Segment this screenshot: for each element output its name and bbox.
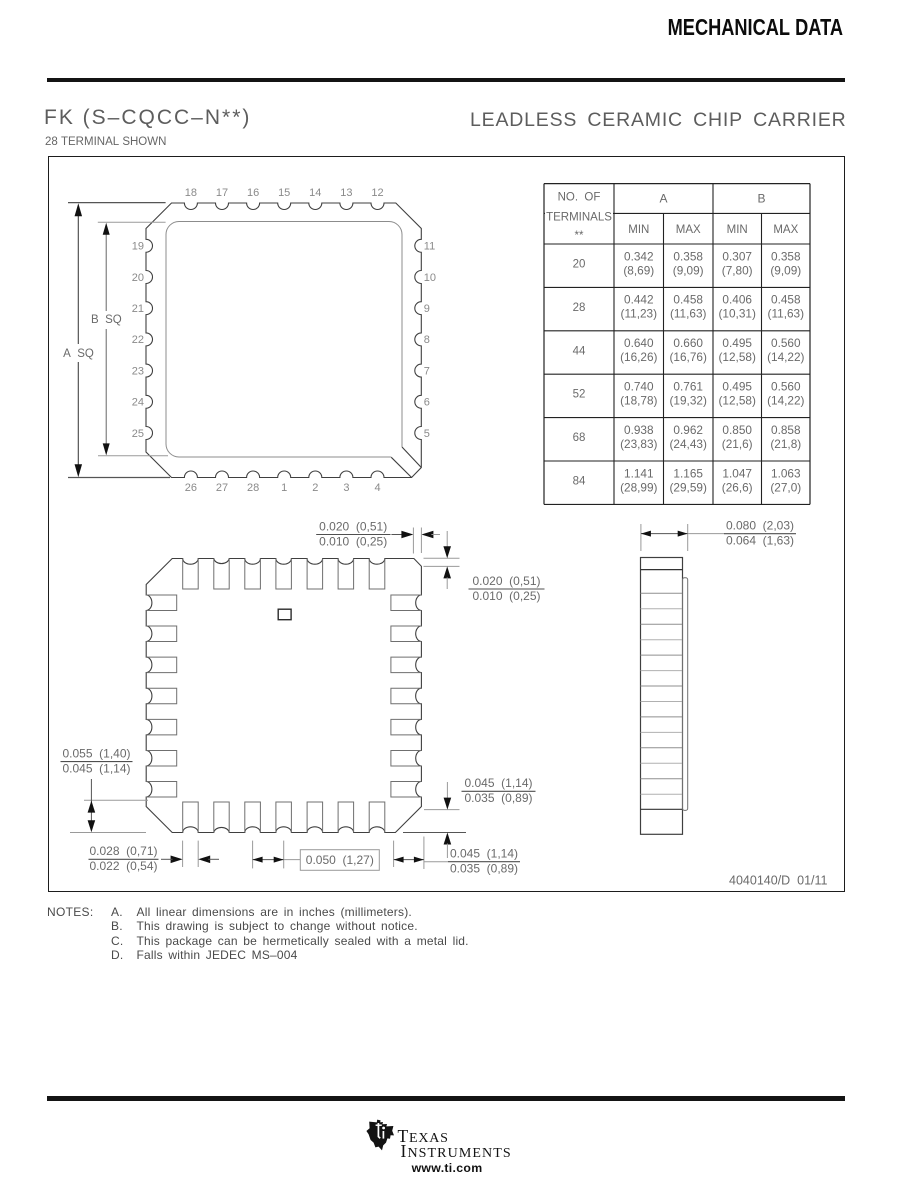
svg-text:0.858: 0.858 [771, 423, 801, 437]
svg-text:4040140/D 01/11: 4040140/D 01/11 [729, 874, 828, 888]
svg-text:6: 6 [424, 397, 430, 409]
svg-text:84: 84 [573, 476, 586, 488]
svg-text:0.035 (0,89): 0.035 (0,89) [450, 862, 518, 876]
svg-text:52: 52 [573, 389, 586, 401]
svg-text:0.406: 0.406 [722, 293, 752, 307]
svg-text:0.850: 0.850 [722, 423, 752, 437]
svg-text:3: 3 [343, 482, 349, 494]
svg-text:0.045 (1,14): 0.045 (1,14) [62, 761, 130, 775]
svg-text:0.055 (1,40): 0.055 (1,40) [62, 746, 130, 760]
svg-text:(21,6): (21,6) [722, 437, 753, 451]
svg-text:0.050 (1,27): 0.050 (1,27) [306, 853, 374, 867]
svg-text:0.761: 0.761 [673, 380, 703, 394]
svg-text:MIN: MIN [628, 224, 649, 236]
svg-text:9: 9 [424, 303, 430, 315]
svg-text:0.342: 0.342 [624, 249, 654, 263]
svg-text:0.064 (1,63): 0.064 (1,63) [726, 534, 794, 548]
svg-text:16: 16 [247, 187, 259, 199]
svg-text:0.560: 0.560 [771, 380, 801, 394]
svg-text:26: 26 [185, 482, 197, 494]
svg-text:0.010 (0,25): 0.010 (0,25) [472, 589, 540, 603]
svg-text:0.020 (0,51): 0.020 (0,51) [319, 519, 387, 533]
svg-text:23: 23 [132, 365, 144, 377]
svg-text:(23,83): (23,83) [620, 437, 657, 451]
svg-text:15: 15 [278, 187, 290, 199]
svg-text:(26,6): (26,6) [722, 480, 753, 494]
svg-text:12: 12 [371, 187, 383, 199]
svg-text:0.020 (0,51): 0.020 (0,51) [472, 574, 540, 588]
svg-text:0.045 (1,14): 0.045 (1,14) [464, 776, 532, 790]
svg-text:0.660: 0.660 [673, 336, 703, 350]
svg-text:(11,23): (11,23) [621, 307, 658, 321]
svg-text:0.358: 0.358 [673, 249, 703, 263]
svg-text:0.458: 0.458 [771, 293, 801, 307]
svg-text:1.165: 1.165 [673, 466, 703, 480]
svg-text:20: 20 [132, 272, 144, 284]
svg-text:28: 28 [573, 302, 586, 314]
svg-text:19: 19 [132, 241, 144, 253]
svg-text:A: A [659, 191, 667, 205]
svg-text:MAX: MAX [676, 224, 701, 236]
svg-text:14: 14 [309, 187, 321, 199]
svg-text:(16,26): (16,26) [620, 350, 657, 364]
svg-text:1.063: 1.063 [771, 466, 801, 480]
svg-text:11: 11 [424, 241, 435, 253]
svg-text:MIN: MIN [727, 224, 748, 236]
svg-text:(12,58): (12,58) [719, 394, 756, 408]
svg-text:(27,0): (27,0) [770, 480, 801, 494]
svg-text:0.640: 0.640 [624, 336, 654, 350]
svg-text:0.442: 0.442 [624, 293, 654, 307]
svg-text:0.560: 0.560 [771, 336, 801, 350]
svg-text:2: 2 [312, 482, 318, 494]
svg-text:0.010 (0,25): 0.010 (0,25) [319, 534, 387, 548]
svg-text:NO. OF: NO. OF [558, 192, 601, 204]
svg-text:(12,58): (12,58) [719, 350, 756, 364]
svg-text:5: 5 [424, 428, 430, 440]
svg-text:25: 25 [132, 428, 144, 440]
svg-text:TERMINALS: TERMINALS [546, 212, 612, 224]
svg-text:7: 7 [424, 365, 430, 377]
svg-text:(29,59): (29,59) [670, 480, 707, 494]
svg-text:1.047: 1.047 [722, 466, 752, 480]
svg-text:(21,8): (21,8) [770, 437, 801, 451]
svg-text:B SQ: B SQ [91, 314, 122, 326]
svg-text:18: 18 [185, 187, 197, 199]
svg-text:A SQ: A SQ [63, 348, 94, 360]
svg-text:(19,32): (19,32) [670, 394, 707, 408]
svg-text:0.495: 0.495 [722, 380, 752, 394]
svg-text:**: ** [575, 230, 584, 242]
svg-text:(11,63): (11,63) [670, 307, 707, 321]
svg-text:21: 21 [132, 303, 144, 315]
svg-text:0.458: 0.458 [673, 293, 703, 307]
svg-text:(9,09): (9,09) [673, 263, 704, 277]
svg-text:(9,09): (9,09) [770, 263, 801, 277]
svg-text:4: 4 [374, 482, 380, 494]
svg-text:0.938: 0.938 [624, 423, 654, 437]
svg-text:10: 10 [424, 272, 436, 284]
svg-text:0.045 (1,14): 0.045 (1,14) [450, 847, 518, 861]
svg-text:1.141: 1.141 [624, 466, 654, 480]
svg-text:0.358: 0.358 [771, 249, 801, 263]
svg-text:(24,43): (24,43) [670, 437, 707, 451]
svg-text:1: 1 [281, 482, 287, 494]
svg-text:20: 20 [573, 259, 586, 271]
svg-text:0.962: 0.962 [673, 423, 703, 437]
svg-text:(14,22): (14,22) [767, 350, 804, 364]
svg-text:8: 8 [424, 334, 430, 346]
svg-text:(7,80): (7,80) [722, 263, 753, 277]
svg-text:27: 27 [216, 482, 228, 494]
svg-text:0.307: 0.307 [722, 249, 752, 263]
svg-text:28: 28 [247, 482, 259, 494]
svg-text:13: 13 [340, 187, 352, 199]
svg-text:0.495: 0.495 [722, 336, 752, 350]
svg-text:0.035 (0,89): 0.035 (0,89) [464, 791, 532, 805]
svg-text:MAX: MAX [773, 224, 798, 236]
svg-text:0.080 (2,03): 0.080 (2,03) [726, 519, 794, 533]
svg-text:44: 44 [573, 345, 586, 357]
svg-text:(28,99): (28,99) [620, 480, 657, 494]
svg-text:17: 17 [216, 187, 228, 199]
svg-text:(18,78): (18,78) [620, 394, 657, 408]
svg-text:24: 24 [132, 397, 144, 409]
svg-text:B: B [757, 191, 765, 205]
svg-text:(16,76): (16,76) [670, 350, 707, 364]
svg-text:(10,31): (10,31) [719, 307, 756, 321]
svg-text:0.740: 0.740 [624, 380, 654, 394]
svg-text:22: 22 [132, 334, 144, 346]
svg-text:68: 68 [573, 432, 586, 444]
svg-text:(14,22): (14,22) [767, 394, 804, 408]
svg-text:(8,69): (8,69) [623, 263, 654, 277]
svg-text:0.022 (0,54): 0.022 (0,54) [89, 859, 157, 873]
svg-text:(11,63): (11,63) [768, 307, 805, 321]
svg-text:0.028 (0,71): 0.028 (0,71) [89, 844, 157, 858]
